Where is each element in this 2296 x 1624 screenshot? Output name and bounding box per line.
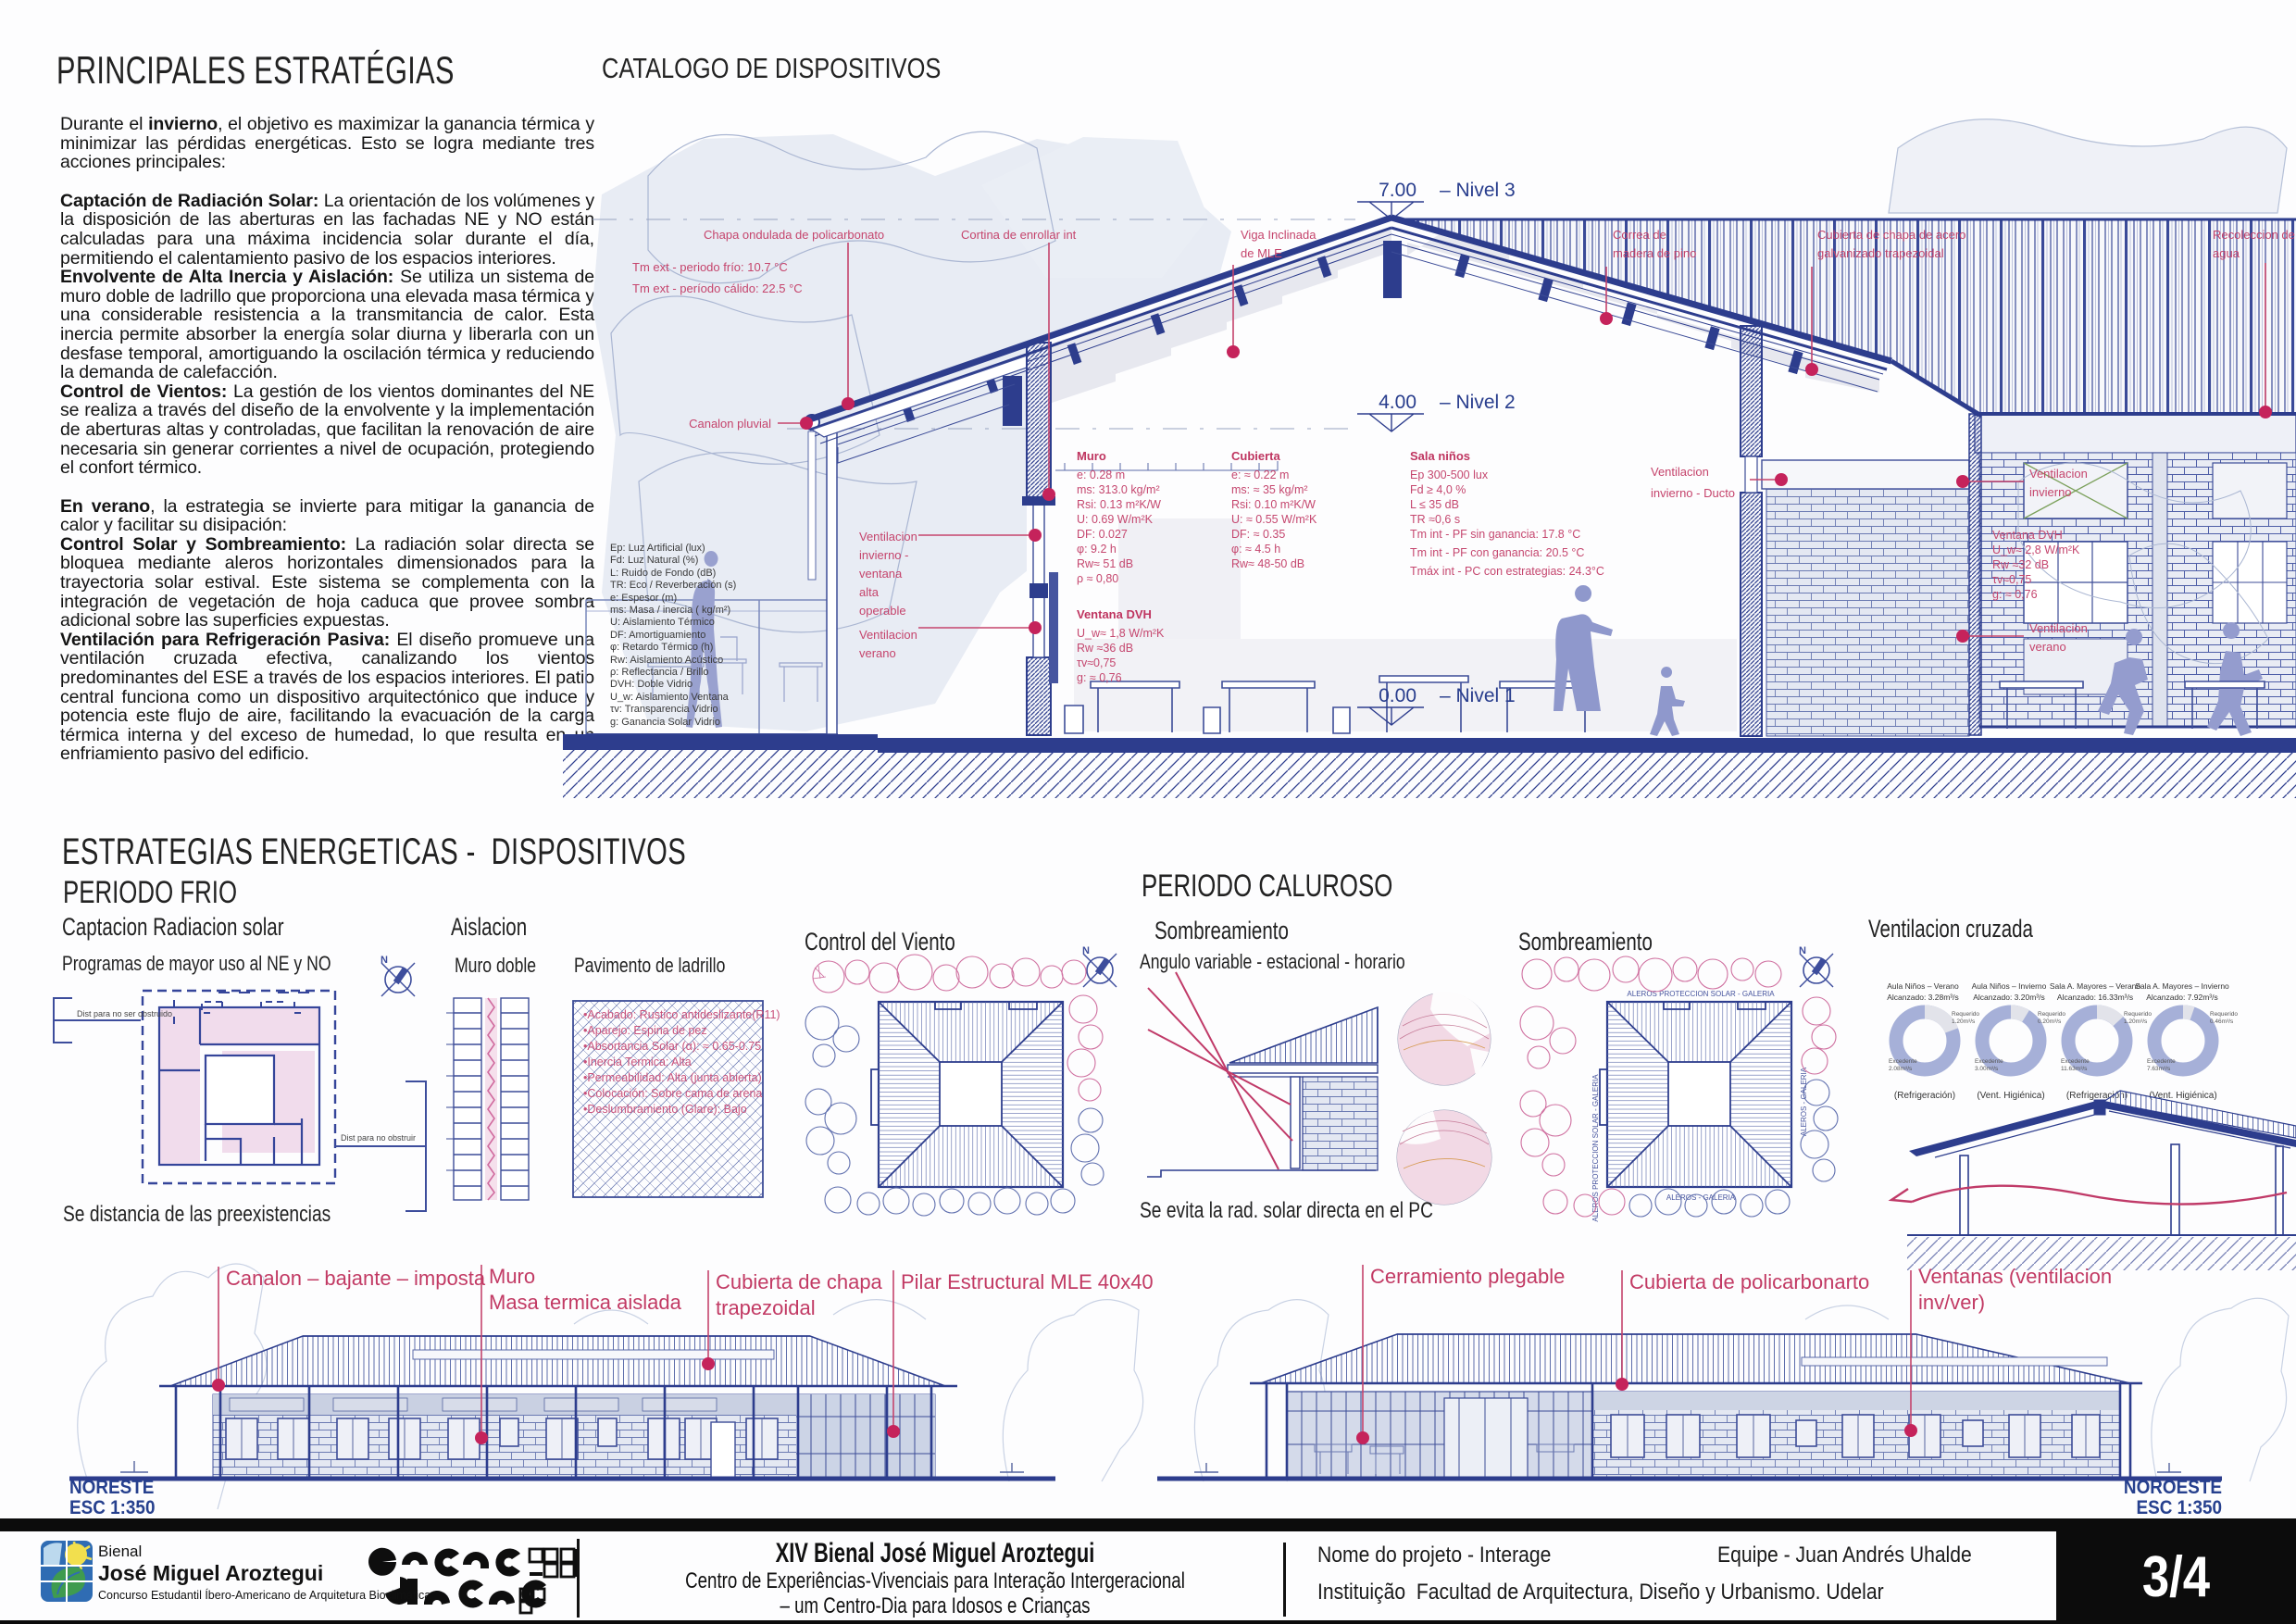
svg-text:e: 0.28 m: e: 0.28 m — [1077, 468, 1125, 481]
svg-text:ms: 313.0 kg/m²: ms: 313.0 kg/m² — [1077, 483, 1160, 496]
svg-text:galvanizado trapezoidal: galvanizado trapezoidal — [1817, 246, 1944, 260]
svg-text:ρ ≈ 0,80: ρ ≈ 0,80 — [1077, 572, 1118, 585]
svg-text:Ventilacion: Ventilacion — [1651, 465, 1709, 479]
svg-text:Tmáx int - PC con estrategias:: Tmáx int - PC con estrategias: 24.3°C — [1410, 565, 1604, 578]
svg-text:•Inercia Termica: Alta: •Inercia Termica: Alta — [583, 1056, 692, 1068]
svg-text:0.46m³/s: 0.46m³/s — [2210, 1018, 2234, 1025]
svg-text:•Acabado: Rustico antideslizan: •Acabado: Rustico antideslizante(R11) — [583, 1008, 780, 1021]
svg-text:7.00: 7.00 — [1379, 180, 1416, 201]
svg-text:•Absortancia Solar (α): ≈ 0.65: •Absortancia Solar (α): ≈ 0.65-0.75 — [583, 1040, 761, 1053]
svg-text:1.20m³/s: 1.20m³/s — [2124, 1018, 2148, 1025]
svg-text:3.00m³/s: 3.00m³/s — [1975, 1066, 1999, 1072]
svg-text:Dist para no ser obstruido: Dist para no ser obstruido — [77, 1009, 172, 1018]
svg-text:trapezoidal: trapezoidal — [716, 1296, 816, 1319]
svg-text:Tm int - PF con ganancia: 20.5: Tm int - PF con ganancia: 20.5 °C — [1410, 546, 1584, 559]
svg-text:Cubierta de policarbonarto: Cubierta de policarbonarto — [1629, 1270, 1869, 1293]
svg-text:Aula Niños – Verano: Aula Niños – Verano — [1887, 981, 1959, 991]
svg-text:Tm ext - período cálido: 22.5: Tm ext - período cálido: 22.5 °C — [632, 281, 803, 295]
svg-text:Rsi: 0.10 m²K/W: Rsi: 0.10 m²K/W — [1231, 498, 1316, 511]
svg-text:Canalon pluvial: Canalon pluvial — [689, 417, 771, 431]
svg-text:•Permeabilidad: Alta (junta ab: •Permeabilidad: Alta (junta abierta) — [583, 1071, 762, 1084]
svg-text:ALEROS - GALERIA: ALEROS - GALERIA — [1666, 1193, 1736, 1202]
svg-text:agua: agua — [2213, 246, 2240, 260]
svg-text:alta: alta — [859, 585, 880, 599]
svg-text:U: 0.69 W/m²K: U: 0.69 W/m²K — [1077, 513, 1154, 526]
svg-text:7.63m³/s: 7.63m³/s — [2147, 1066, 2171, 1072]
svg-text:0.00: 0.00 — [1379, 685, 1416, 706]
svg-text:τv≈0,75: τv≈0,75 — [1077, 656, 1116, 669]
svg-text:Rw≈ 48-50 dB: Rw≈ 48-50 dB — [1231, 557, 1304, 570]
svg-text:g: ≈ 0,76: g: ≈ 0,76 — [1992, 588, 2038, 601]
svg-text:verano: verano — [859, 646, 896, 660]
svg-text:Cortina de enrollar int: Cortina de enrollar int — [961, 228, 1077, 242]
svg-text:L ≤ 35 dB: L ≤ 35 dB — [1410, 498, 1459, 511]
svg-text:operable: operable — [859, 604, 906, 618]
svg-text:Ventilacion: Ventilacion — [2029, 621, 2088, 635]
svg-text:Excedente: Excedente — [2061, 1058, 2090, 1065]
svg-text:0.20m³/s: 0.20m³/s — [2038, 1018, 2062, 1025]
svg-text:DF: ≈ 0.35: DF: ≈ 0.35 — [1231, 528, 1285, 541]
svg-text:madera de pino: madera de pino — [1613, 246, 1696, 260]
svg-text:Ventana DVH: Ventana DVH — [1992, 529, 2063, 542]
svg-text:Excedente: Excedente — [1889, 1058, 1917, 1065]
svg-text:U_w≈ 1,8 W/m²K: U_w≈ 1,8 W/m²K — [1077, 627, 1165, 640]
svg-text:Cubierta: Cubierta — [1231, 449, 1281, 463]
svg-text:Muro: Muro — [1077, 449, 1106, 463]
svg-text:1.20m³/s: 1.20m³/s — [1952, 1018, 1976, 1025]
svg-text:Rw ≈32 dB: Rw ≈32 dB — [1992, 558, 2049, 571]
svg-text:(Vent. Higiénica): (Vent. Higiénica) — [1977, 1091, 2044, 1101]
svg-text:Alcanzado: 7.92m³/s: Alcanzado: 7.92m³/s — [2146, 993, 2217, 1002]
svg-text:Cubierta de chapa: Cubierta de chapa — [716, 1270, 883, 1293]
svg-text:Chapa ondulada de policarbonat: Chapa ondulada de policarbonato — [704, 228, 884, 242]
svg-text:Sala niños: Sala niños — [1410, 449, 1470, 463]
svg-text:(Refrigeración): (Refrigeración) — [1894, 1091, 1955, 1101]
svg-text:DF: 0.027: DF: 0.027 — [1077, 528, 1128, 541]
svg-text:Requerido: Requerido — [2038, 1011, 2065, 1018]
svg-text:Recoleccion de: Recoleccion de — [2213, 228, 2295, 242]
svg-text:Masa termica aislada: Masa termica aislada — [489, 1291, 682, 1314]
svg-text:Ventana DVH: Ventana DVH — [1077, 607, 1152, 621]
svg-text:Dist para no obstruir: Dist para no obstruir — [341, 1133, 416, 1143]
svg-text:invierno: invierno — [2029, 485, 2072, 499]
svg-text:Excedente: Excedente — [1975, 1058, 2003, 1065]
svg-text:ms: ≈ 35 kg/m²: ms: ≈ 35 kg/m² — [1231, 483, 1308, 496]
svg-text:Excedente: Excedente — [2147, 1058, 2176, 1065]
svg-text:Cubierta de chapa de acero: Cubierta de chapa de acero — [1817, 228, 1965, 242]
svg-text:Requerido: Requerido — [2124, 1011, 2152, 1018]
svg-text:invierno - Ducto: invierno - Ducto — [1651, 486, 1735, 500]
svg-text:Requerido: Requerido — [1952, 1011, 1979, 1018]
svg-text:Aula Niños – Invierno: Aula Niños – Invierno — [1972, 981, 2047, 991]
svg-text:2.08m³/s: 2.08m³/s — [1889, 1066, 1913, 1072]
svg-text:•Colocación: Sobre cama de are: •Colocación: Sobre cama de arena — [583, 1087, 762, 1100]
svg-text:ventana: ventana — [859, 567, 903, 581]
svg-text:Requerido: Requerido — [2210, 1011, 2238, 1018]
svg-text:•Aparejo: Espina de pez: •Aparejo: Espina de pez — [583, 1024, 707, 1037]
svg-text:– Nivel 2: – Nivel 2 — [1440, 392, 1516, 413]
svg-text:TR ≈0,6 s: TR ≈0,6 s — [1410, 513, 1460, 526]
svg-text:Ep 300-500 lux: Ep 300-500 lux — [1410, 468, 1489, 481]
svg-text:ALEROS PROTECCION SOLAR - GALE: ALEROS PROTECCION SOLAR - GALERIA — [1627, 990, 1775, 998]
svg-text:– Nivel 1: – Nivel 1 — [1440, 685, 1516, 706]
svg-text:Sala A. Mayores – Verano: Sala A. Mayores – Verano — [2050, 981, 2141, 991]
svg-text:φ: 9.2 h: φ: 9.2 h — [1077, 543, 1117, 556]
svg-text:g: ≈ 0,76: g: ≈ 0,76 — [1077, 671, 1122, 684]
svg-text:τv≈0,75: τv≈0,75 — [1992, 573, 2031, 586]
svg-text:•Deslumbramiento (Glare): Bajo: •Deslumbramiento (Glare): Bajo — [583, 1103, 747, 1116]
svg-text:Rw≈ 51 dB: Rw≈ 51 dB — [1077, 557, 1133, 570]
svg-text:Alcanzado: 16.33m³/s: Alcanzado: 16.33m³/s — [2057, 993, 2133, 1002]
svg-text:Cerramiento plegable: Cerramiento plegable — [1370, 1265, 1565, 1288]
svg-text:de MLE: de MLE — [1241, 246, 1282, 260]
svg-text:Alcanzado: 3.20m³/s: Alcanzado: 3.20m³/s — [1973, 993, 2044, 1002]
svg-text:Ventanas (ventilacion: Ventanas (ventilacion — [1918, 1265, 2112, 1288]
svg-text:Tm int - PF sin ganancia: 17.8: Tm int - PF sin ganancia: 17.8 °C — [1410, 528, 1580, 541]
svg-text:– Nivel 3: – Nivel 3 — [1440, 180, 1516, 201]
svg-text:Muro: Muro — [489, 1265, 535, 1288]
svg-text:N: N — [381, 955, 388, 966]
svg-text:Sala A. Mayores – Invierno: Sala A. Mayores – Invierno — [2135, 981, 2229, 991]
svg-text:Alcanzado: 3.28m³/s: Alcanzado: 3.28m³/s — [1887, 993, 1958, 1002]
svg-text:Fd ≥ 4,0 %: Fd ≥ 4,0 % — [1410, 483, 1466, 496]
svg-text:invierno -: invierno - — [859, 548, 908, 562]
svg-text:e: ≈ 0.22 m: e: ≈ 0.22 m — [1231, 468, 1289, 481]
svg-text:Rw ≈36 dB: Rw ≈36 dB — [1077, 642, 1133, 655]
svg-text:φ: ≈ 4.5 h: φ: ≈ 4.5 h — [1231, 543, 1280, 556]
svg-text:Tm ext - periodo frío: 10.7 °C: Tm ext - periodo frío: 10.7 °C — [632, 260, 788, 274]
svg-text:Canalon – bajante – imposta: Canalon – bajante – imposta — [226, 1267, 486, 1290]
svg-text:Rsi: 0.13 m²K/W: Rsi: 0.13 m²K/W — [1077, 498, 1161, 511]
svg-text:Ventilacion: Ventilacion — [2029, 467, 2088, 481]
svg-text:Viga Inclinada: Viga Inclinada — [1241, 228, 1316, 242]
svg-text:Ventilacion: Ventilacion — [859, 628, 917, 642]
svg-text:verano: verano — [2029, 640, 2066, 654]
svg-text:Ventilacion: Ventilacion — [859, 530, 917, 543]
svg-text:Pilar Estructural MLE 40x40: Pilar Estructural MLE 40x40 — [901, 1270, 1154, 1293]
svg-text:Correa de: Correa de — [1613, 228, 1666, 242]
svg-text:U_w≈ 2,8 W/m²K: U_w≈ 2,8 W/m²K — [1992, 543, 2080, 556]
svg-text:U: ≈ 0.55 W/m²K: U: ≈ 0.55 W/m²K — [1231, 513, 1317, 526]
svg-text:11.63m³/s: 11.63m³/s — [2061, 1066, 2088, 1072]
svg-text:inv/ver): inv/ver) — [1918, 1291, 1985, 1314]
svg-text:4.00: 4.00 — [1379, 392, 1416, 413]
